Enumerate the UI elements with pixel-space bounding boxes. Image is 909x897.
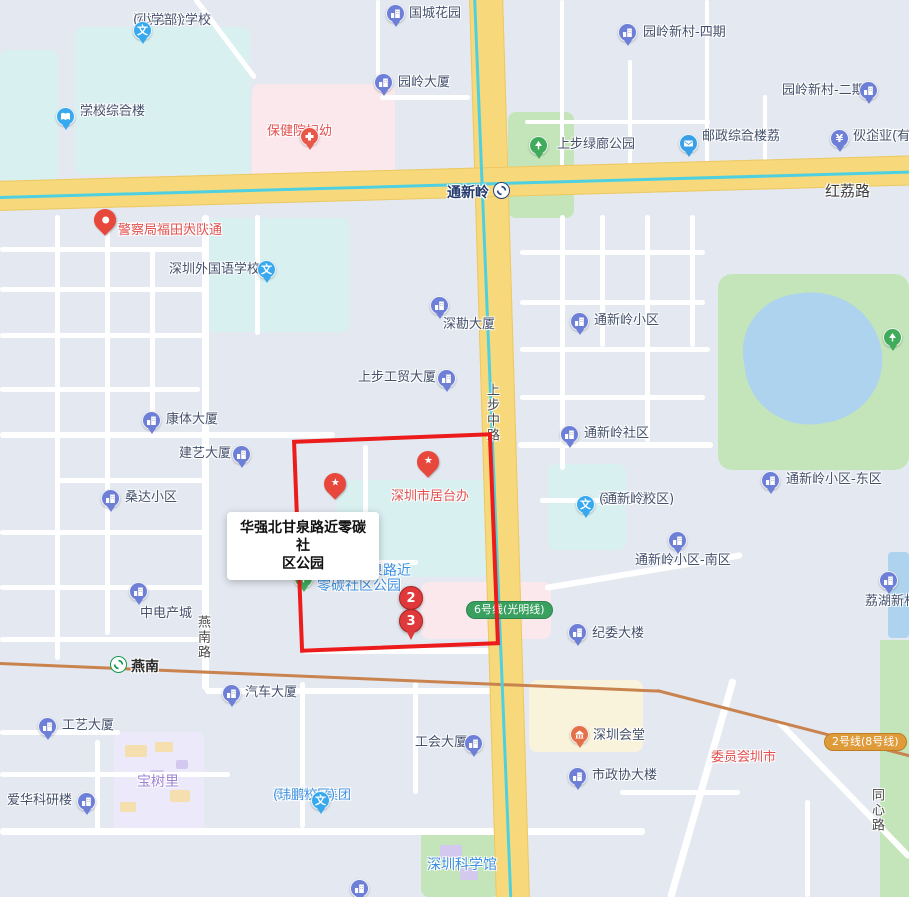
yuanling-xincun-4-icon[interactable] [618, 23, 637, 42]
jiwei-building-label-line: 纪委大楼 [592, 627, 644, 641]
star-pin-obscured-shape: ★ [319, 468, 350, 499]
jiwei-building-icon[interactable] [568, 623, 587, 642]
yannan-station-label[interactable]: 燕南 [131, 656, 159, 676]
shangbu-trade-building-label-line: 上步工贸大厦 [358, 371, 436, 385]
tongxinling-xiaoqu-label-line: 通新岭小区 [594, 314, 659, 328]
star-pin-jutaiban-shape: ★ [412, 446, 443, 477]
sz-experimental-primary-icon[interactable]: 文 [133, 21, 152, 40]
police-pin[interactable] [94, 209, 116, 231]
star-pin-obscured[interactable]: ★ [324, 473, 346, 495]
guocheng-garden-label-line: 国城花园 [409, 7, 461, 21]
traffic-police-futian-label-line: 警察局福田大队 [118, 224, 209, 238]
tongxinling-xiaoqu-icon[interactable] [570, 312, 589, 331]
police-pin-shape [89, 204, 120, 235]
star-pin-jutaiban[interactable]: ★ [417, 451, 439, 473]
liyuan-primary-txl-icon[interactable]: 文 [576, 495, 595, 514]
lvlang-park-label-line: 上步绿廊公园 [557, 138, 635, 152]
route-marker-3[interactable]: 3 [399, 609, 423, 633]
zhongdian-chancheng-icon[interactable] [129, 582, 148, 601]
line2-badge: 2号线(8号线) [824, 733, 907, 751]
qiche-building-label-line: 汽车大厦 [245, 686, 297, 700]
shizhengxie-building-icon[interactable] [568, 767, 587, 786]
guocheng-garden-icon[interactable] [386, 4, 405, 23]
gonghui-building-label-line: 工会大厦 [415, 736, 467, 750]
tooltip-line-2: 区公园 [235, 555, 371, 573]
shenkan-building-icon[interactable] [430, 296, 449, 315]
road-label-同心路: 同心路 [867, 788, 886, 833]
zhongdian-chancheng-label-line: 中电产城 [140, 607, 192, 621]
lihu-xincun-label-line: 荔湖新村 [865, 595, 909, 609]
jianyi-building-label-line: 建艺大厦 [179, 447, 231, 461]
tongxinling-east-icon[interactable] [761, 471, 780, 490]
gongyi-building-label-line: 工艺大厦 [62, 719, 114, 733]
gonghui-building-icon[interactable] [464, 734, 483, 753]
tongxinling-south-label-line: 通新岭小区-南区 [635, 554, 731, 568]
map-canvas[interactable]: 华强北甘泉路近零碳社 区公园 文深圳实验学校(小学部)国城花园深圳实验学校综合楼… [0, 0, 909, 897]
aihua-research-label-line: 爱华科研楼 [7, 794, 72, 808]
road-label-燕南路: 燕南路 [193, 615, 212, 660]
yannan-station-logo-icon[interactable] [110, 656, 127, 673]
tongxinling-shequ-label-line: 通新岭社区 [584, 427, 649, 441]
route-marker-3-number: 3 [406, 614, 415, 629]
experimental-complex-icon[interactable] [56, 107, 75, 126]
route-marker-2[interactable]: 2 [399, 586, 423, 610]
yuanling-building-icon[interactable] [374, 73, 393, 92]
route-marker-3-tip [406, 630, 416, 640]
shizhengxie-building-label-line: 市政协大楼 [592, 769, 657, 783]
sangda-xiaoqu-label-line: 桑达小区 [125, 491, 177, 505]
dream-factory-partnership-icon[interactable]: ¥ [830, 129, 849, 148]
experimental-complex-label-line: 学校综合楼 [80, 105, 145, 119]
shenzhen-huitang-label-line: 深圳会堂 [593, 729, 645, 743]
tongxinling-south-icon[interactable] [668, 531, 687, 550]
yuanling-building-label-line: 园岭大厦 [398, 76, 450, 90]
lihu-xincun-icon[interactable] [879, 571, 898, 590]
shenkan-building-label-line: 深勘大厦 [443, 318, 495, 332]
park-tree-poi-icon[interactable] [883, 328, 902, 347]
cpc-shenzhen-committee-label-line: 委员会 [711, 751, 750, 765]
yuanling-xincun-4-label-line: 园岭新村-四期 [643, 26, 726, 40]
sangda-xiaoqu-icon[interactable] [101, 489, 120, 508]
foreign-language-school-label-line: 深圳外国语学校 [169, 263, 260, 277]
fuyou-hospital-icon[interactable] [300, 127, 319, 146]
shangbu-trade-building-icon[interactable] [437, 369, 456, 388]
lvlang-park-icon[interactable] [529, 136, 548, 155]
tongxinling-station-label[interactable]: 通新岭 [447, 182, 489, 202]
dream-factory-partnership-label-line: 伙企业(有限 [853, 130, 909, 144]
foreign-language-school-icon[interactable]: 文 [257, 260, 276, 279]
tongxinling-east-label-line: 通新岭小区-东区 [786, 473, 882, 487]
china-post-hongli-icon[interactable] [679, 134, 698, 153]
tongxinling-shequ-icon[interactable] [560, 425, 579, 444]
gongyi-building-icon[interactable] [38, 717, 57, 736]
qiche-building-icon[interactable] [222, 684, 241, 703]
road-label-红荔路: 红荔路 [825, 180, 870, 201]
selection-tooltip: 华强北甘泉路近零碳社 区公园 [227, 512, 379, 580]
liyuan-primary-txl-label-line: (通新岭校区) [599, 493, 674, 507]
liyuan-edu-weipeng-icon[interactable]: 文 [311, 791, 330, 810]
route-marker-2-number: 2 [406, 591, 415, 606]
shenzhen-science-museum-label-line: 深圳科学馆 [427, 858, 497, 872]
yuanling-xincun-2-icon[interactable] [859, 81, 878, 100]
china-post-hongli-label-line: 邮政综合楼 [702, 130, 767, 144]
aihua-research-icon[interactable] [77, 792, 96, 811]
bottom-building-poi-icon[interactable] [350, 879, 369, 897]
jianyi-building-icon[interactable] [232, 445, 251, 464]
tongxinling-station-logo-icon[interactable] [493, 182, 510, 199]
yuanling-xincun-2-label-line: 园岭新村-二期 [782, 84, 865, 98]
tooltip-line-1: 华强北甘泉路近零碳社 [235, 519, 371, 555]
kangti-building-label-line: 康体大厦 [166, 413, 218, 427]
shenzhen-huitang-icon[interactable] [570, 725, 589, 744]
kangti-building-icon[interactable] [142, 411, 161, 430]
baoshuli-label-line: 宝树里 [137, 775, 179, 789]
